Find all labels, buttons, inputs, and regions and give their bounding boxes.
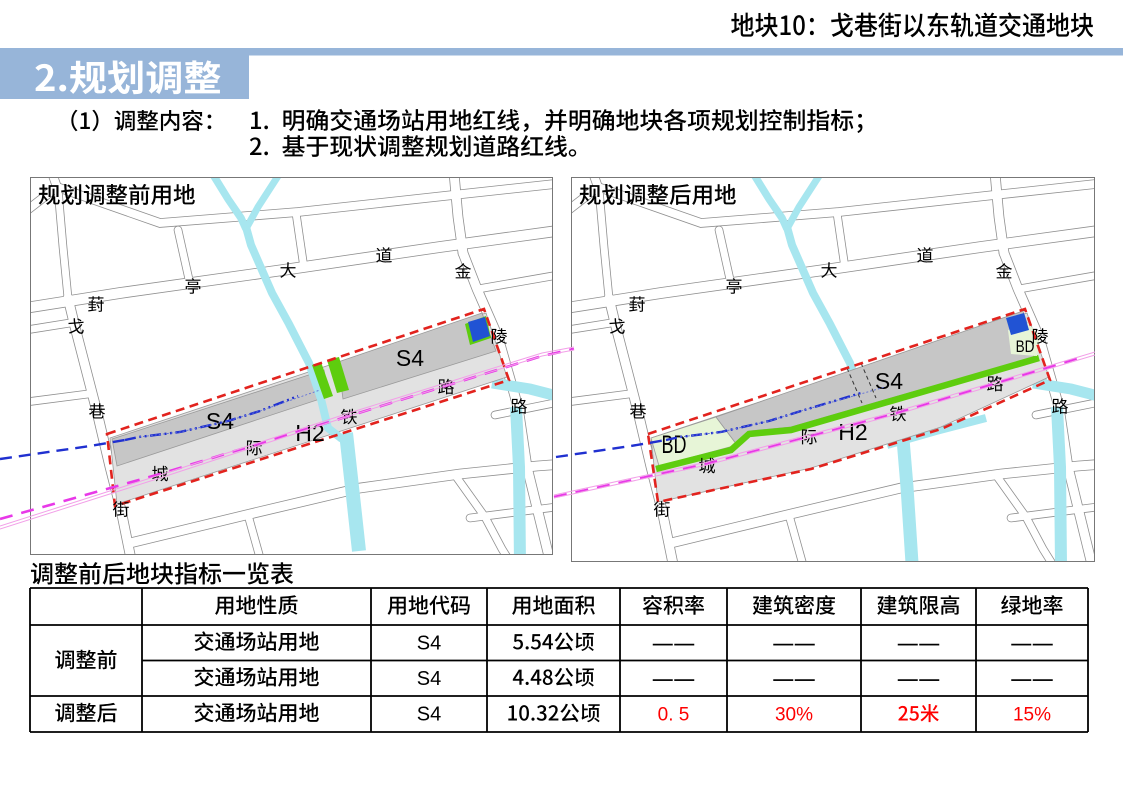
svg-text:S4: S4	[417, 704, 441, 726]
svg-text:S4: S4	[417, 668, 441, 690]
svg-text:BD: BD	[1016, 338, 1035, 357]
svg-text:0. 5: 0. 5	[658, 705, 690, 726]
svg-text:30%: 30%	[775, 705, 813, 726]
svg-text:BD: BD	[662, 430, 687, 459]
svg-text:S4: S4	[417, 632, 441, 654]
svg-text:15%: 15%	[1013, 705, 1051, 726]
svg-text:S4: S4	[875, 368, 903, 394]
svg-text:S4: S4	[396, 345, 424, 371]
